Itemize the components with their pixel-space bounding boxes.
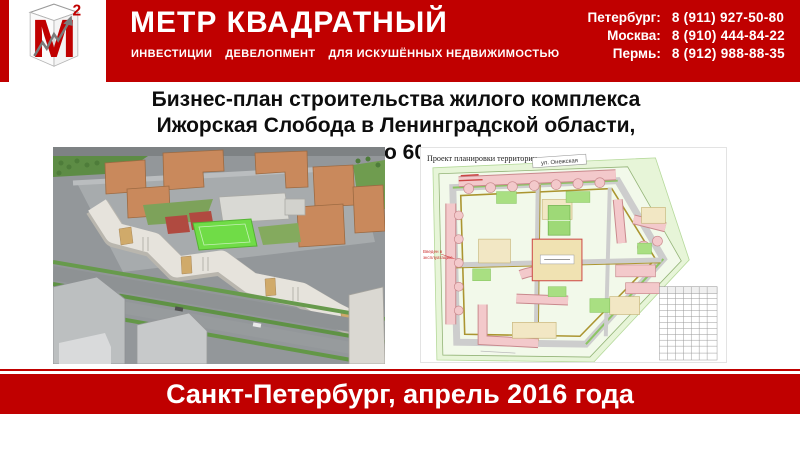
- company-tagline: ИНВЕСТИЦИИ ДЕВЕЛОПМЕНТ ДЛЯ ИСКУШЁННЫХ НЕ…: [131, 48, 560, 60]
- render-scene: [53, 147, 385, 364]
- svg-text:Введен в: Введен в: [423, 249, 443, 254]
- contact-phone: 8 (911) 927-50-80: [672, 11, 785, 25]
- company-logo: М 2: [26, 2, 82, 68]
- header-bar: МЕТР КВАДРАТНЫЙ ИНВЕСТИЦИИ ДЕВЕЛОПМЕНТ Д…: [106, 0, 800, 82]
- slide: М 2 МЕТР КВАДРАТНЫЙ ИНВЕСТИЦИИ ДЕВЕЛОПМЕ…: [0, 0, 800, 450]
- slide-title: Бизнес-план строительства жилого комплек…: [40, 87, 752, 139]
- left-accent-stripe: [0, 0, 9, 82]
- contact-city-label: Пермь:: [588, 47, 661, 61]
- site-plan-image: Проект планировки территории ул. Онежска…: [420, 147, 727, 363]
- title-line-1: Бизнес-план строительства жилого комплек…: [40, 87, 752, 113]
- footer-text: Санкт-Петербург, апрель 2016 года: [166, 379, 634, 409]
- contact-city-label: Москва:: [588, 29, 661, 43]
- sports-field: [193, 219, 257, 250]
- complex-3d-render-image: [53, 147, 385, 364]
- contact-list: Петербург: 8 (911) 927-50-80 Москва: 8 (…: [588, 11, 785, 61]
- contact-city-label: Петербург:: [588, 11, 661, 25]
- svg-text:эксплуатацию: эксплуатацию: [423, 255, 453, 260]
- footer-bar: Санкт-Петербург, апрель 2016 года: [0, 374, 800, 414]
- site-plan-drawing: Проект планировки территории ул. Онежска…: [421, 148, 726, 362]
- tagline-part: ДЛЯ ИСКУШЁННЫХ НЕДВИЖИМОСТЬЮ: [328, 48, 559, 60]
- contact-phone: 8 (912) 988-88-35: [672, 47, 785, 61]
- company-name: МЕТР КВАДРАТНЫЙ: [130, 6, 448, 40]
- tagline-part: ИНВЕСТИЦИИ: [131, 48, 212, 60]
- spec-table: [659, 287, 717, 360]
- site-plan-caption: Проект планировки территории: [427, 154, 538, 163]
- logo-cube-icon: М 2: [26, 2, 82, 68]
- contact-phone: 8 (910) 444-84-22: [672, 29, 785, 43]
- logo-superscript: 2: [72, 2, 81, 19]
- title-line-2: Ижорская Слобода в Ленинградской области…: [40, 113, 752, 139]
- footer-divider-line: [0, 369, 800, 371]
- tagline-part: ДЕВЕЛОПМЕНТ: [225, 48, 315, 60]
- title-line-3-fragment: о 60: [384, 141, 421, 166]
